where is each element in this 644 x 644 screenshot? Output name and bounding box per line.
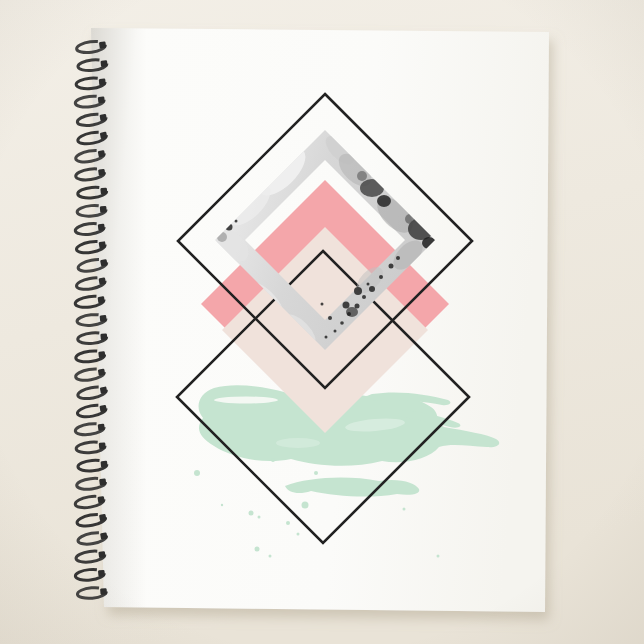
vignette-overlay	[0, 0, 644, 644]
planner-photo-canvas	[0, 0, 644, 644]
product-photo	[0, 0, 644, 644]
